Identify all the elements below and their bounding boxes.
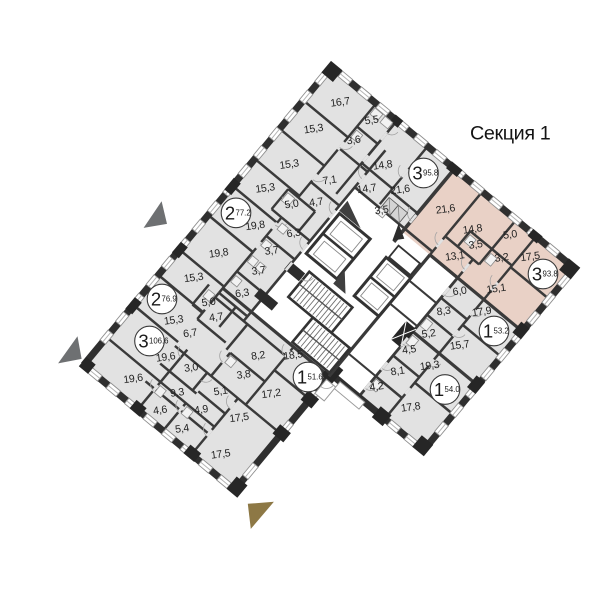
svg-text:2: 2 <box>151 289 161 310</box>
svg-text:3: 3 <box>138 331 148 352</box>
svg-text:4,7: 4,7 <box>208 310 224 324</box>
svg-text:3,8: 3,8 <box>236 368 252 382</box>
svg-text:95.8: 95.8 <box>423 169 438 178</box>
svg-text:53.2: 53.2 <box>494 327 509 336</box>
svg-text:5,0: 5,0 <box>502 228 518 242</box>
svg-text:1: 1 <box>297 367 307 388</box>
svg-text:3,0: 3,0 <box>183 361 199 375</box>
svg-text:5,2: 5,2 <box>421 327 437 341</box>
svg-text:54.0: 54.0 <box>445 385 461 394</box>
svg-text:8,2: 8,2 <box>250 349 266 363</box>
svg-text:3,7: 3,7 <box>251 264 267 278</box>
svg-text:6,3: 6,3 <box>234 286 250 300</box>
svg-text:1: 1 <box>483 321 493 342</box>
svg-text:6,0: 6,0 <box>452 284 468 298</box>
svg-text:5,0: 5,0 <box>201 295 217 309</box>
svg-text:106.6: 106.6 <box>149 337 169 346</box>
svg-text:77.2: 77.2 <box>236 208 251 217</box>
svg-text:6,7: 6,7 <box>182 326 198 340</box>
svg-text:8,3: 8,3 <box>436 304 452 318</box>
svg-text:6,3: 6,3 <box>286 226 302 240</box>
svg-text:5,0: 5,0 <box>284 197 300 211</box>
svg-text:5,1: 5,1 <box>213 384 229 398</box>
svg-text:4,7: 4,7 <box>308 195 324 209</box>
svg-text:3,7: 3,7 <box>264 244 280 258</box>
svg-text:9,3: 9,3 <box>169 386 185 400</box>
svg-text:3,6: 3,6 <box>346 133 362 147</box>
svg-text:5,5: 5,5 <box>364 113 380 127</box>
svg-text:4,6: 4,6 <box>152 403 168 417</box>
svg-text:1: 1 <box>434 379 444 400</box>
svg-text:8,1: 8,1 <box>390 364 406 378</box>
svg-text:4,9: 4,9 <box>193 403 209 417</box>
svg-text:93.8: 93.8 <box>543 270 558 279</box>
svg-text:3,5: 3,5 <box>374 203 390 217</box>
svg-text:3,2: 3,2 <box>494 251 510 265</box>
svg-text:76.9: 76.9 <box>162 295 177 304</box>
svg-text:51.6: 51.6 <box>308 373 323 382</box>
svg-text:Секция 1: Секция 1 <box>470 123 551 145</box>
svg-text:4,2: 4,2 <box>369 380 385 394</box>
svg-text:7,1: 7,1 <box>322 173 338 187</box>
svg-text:3,5: 3,5 <box>468 238 484 252</box>
svg-text:2: 2 <box>225 202 235 223</box>
svg-text:4,5: 4,5 <box>401 343 417 357</box>
svg-text:3: 3 <box>532 264 542 285</box>
svg-text:5,4: 5,4 <box>174 422 190 436</box>
svg-text:3: 3 <box>412 163 422 184</box>
